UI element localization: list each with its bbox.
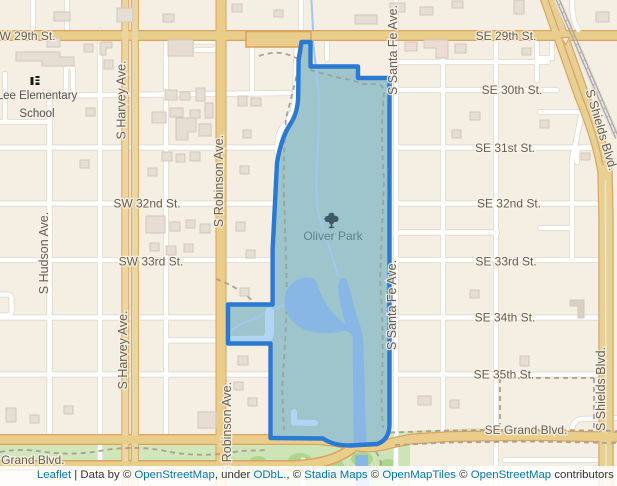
svg-text:S Santa Fe Ave.: S Santa Fe Ave.	[385, 260, 399, 350]
svg-text:S Harvey Ave.: S Harvey Ave.	[115, 61, 129, 140]
svg-text:SE 33rd St.: SE 33rd St.	[475, 255, 536, 269]
svg-text:S Robinson Ave.: S Robinson Ave.	[212, 135, 226, 227]
svg-text:SE Grand Blvd.: SE Grand Blvd.	[485, 423, 568, 437]
svg-text:SE 34th St.: SE 34th St.	[475, 311, 536, 325]
svg-text:SW 32nd St.: SW 32nd St.	[113, 197, 180, 211]
svg-text:SE 31st St.: SE 31st St.	[475, 141, 535, 155]
svg-text:S Shields Blvd.: S Shields Blvd.	[594, 347, 608, 431]
svg-text:Oliver Park: Oliver Park	[303, 229, 363, 243]
svg-text:SE 29th St.: SE 29th St.	[476, 29, 537, 43]
svg-text:S Harvey Ave.: S Harvey Ave.	[116, 311, 130, 390]
svg-text:Lee Elementary: Lee Elementary	[0, 90, 78, 102]
svg-text:SW 33rd St.: SW 33rd St.	[119, 255, 184, 269]
svg-text:SE 35th St.: SE 35th St.	[474, 368, 535, 382]
svg-text:SE 30th St.: SE 30th St.	[482, 83, 543, 97]
svg-text:S Robinson Ave.: S Robinson Ave.	[220, 382, 234, 474]
svg-text:SW 29th St.: SW 29th St.	[0, 29, 56, 43]
svg-text:SE 32nd St.: SE 32nd St.	[477, 197, 541, 211]
svg-text:S Santa Fe Ave.: S Santa Fe Ave.	[386, 5, 400, 95]
svg-text:School: School	[19, 108, 54, 120]
svg-text:S Hudson Ave.: S Hudson Ave.	[37, 212, 51, 294]
svg-text:SW Grand Blvd.: SW Grand Blvd.	[0, 453, 65, 467]
